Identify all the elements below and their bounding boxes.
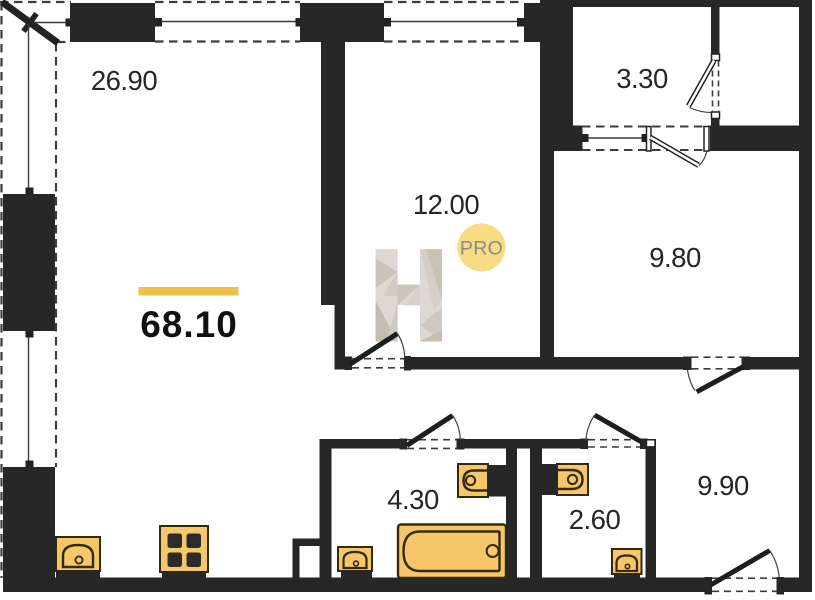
svg-text:3.30: 3.30 [616,63,668,94]
svg-text:9.90: 9.90 [697,470,749,501]
svg-text:PRO: PRO [460,238,503,260]
svg-text:2.60: 2.60 [569,504,621,535]
svg-text:68.10: 68.10 [140,304,238,345]
svg-text:9.80: 9.80 [649,242,701,273]
svg-text:26.90: 26.90 [91,65,158,96]
svg-text:12.00: 12.00 [413,189,480,220]
svg-text:4.30: 4.30 [387,484,439,515]
